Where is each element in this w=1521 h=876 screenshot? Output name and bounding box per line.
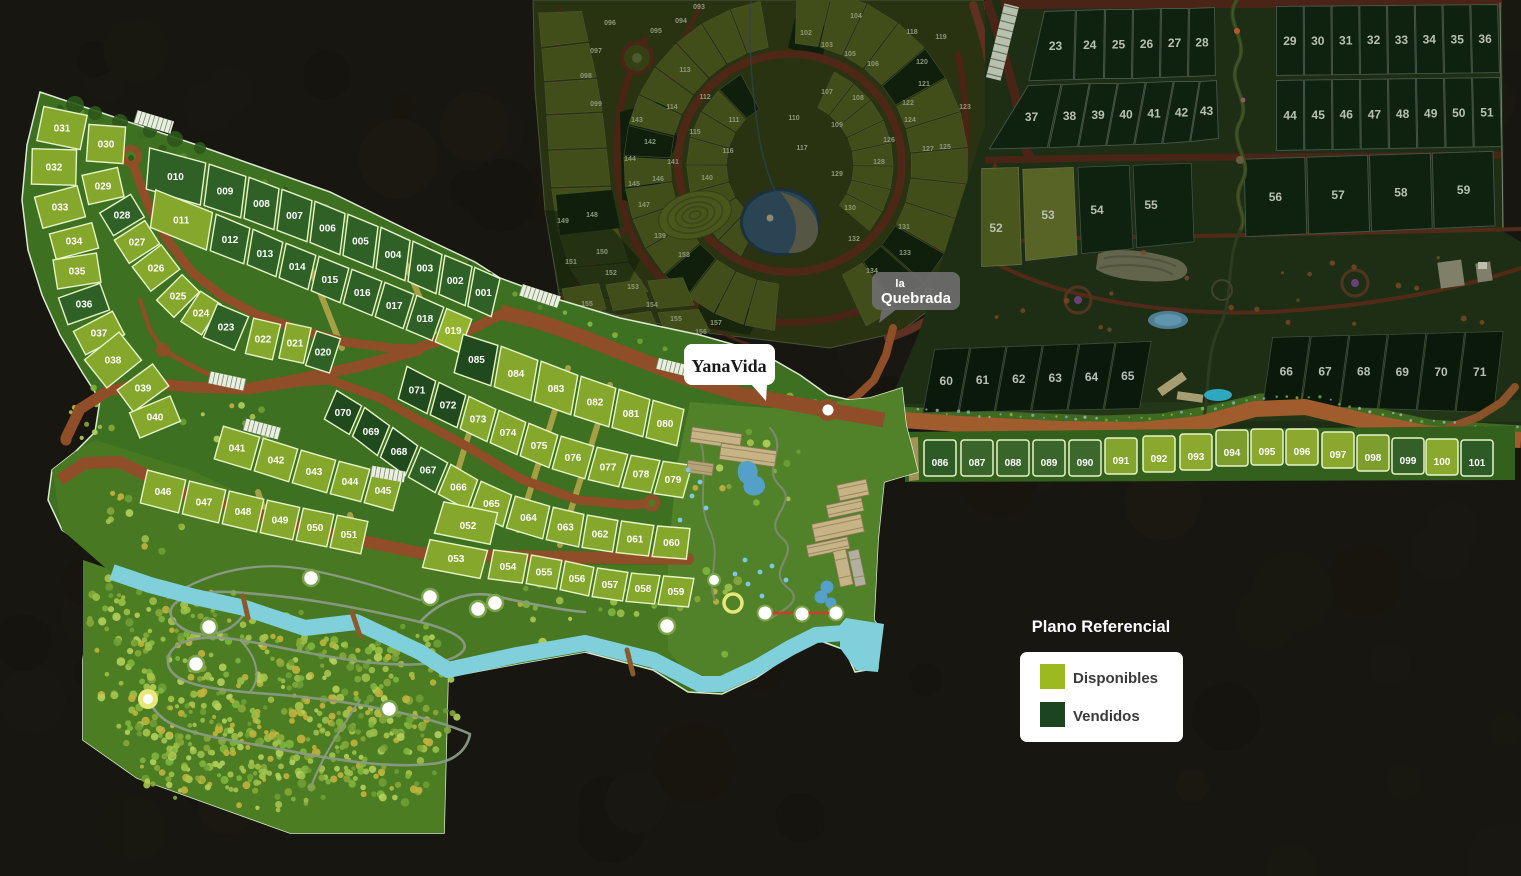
- svg-text:097: 097: [1330, 450, 1347, 461]
- svg-text:014: 014: [289, 262, 306, 273]
- svg-text:55: 55: [1144, 198, 1158, 212]
- svg-text:037: 037: [91, 329, 108, 340]
- svg-text:017: 017: [386, 301, 403, 312]
- svg-text:012: 012: [222, 235, 239, 246]
- svg-text:099: 099: [1400, 456, 1417, 467]
- svg-text:038: 038: [105, 356, 122, 367]
- svg-text:40: 40: [1119, 107, 1133, 121]
- svg-text:149: 149: [557, 218, 569, 225]
- svg-text:65: 65: [1121, 369, 1135, 383]
- svg-text:47: 47: [1368, 107, 1382, 121]
- svg-text:029: 029: [95, 182, 112, 193]
- svg-text:069: 069: [363, 427, 380, 438]
- svg-text:26: 26: [1140, 37, 1154, 51]
- svg-text:109: 109: [831, 122, 843, 129]
- svg-text:098: 098: [580, 73, 592, 80]
- svg-text:112: 112: [699, 94, 710, 101]
- svg-text:157: 157: [710, 320, 722, 327]
- svg-text:021: 021: [287, 339, 304, 350]
- svg-text:040: 040: [147, 413, 164, 424]
- svg-text:Plano Referencial: Plano Referencial: [1032, 618, 1170, 636]
- svg-text:020: 020: [315, 348, 332, 359]
- svg-text:018: 018: [416, 314, 433, 325]
- svg-text:091: 091: [1113, 456, 1130, 467]
- svg-text:121: 121: [918, 81, 930, 88]
- svg-text:059: 059: [668, 587, 685, 598]
- svg-text:YanaVida: YanaVida: [691, 356, 766, 376]
- svg-text:058: 058: [635, 584, 652, 595]
- svg-text:28: 28: [1195, 35, 1209, 49]
- svg-text:085: 085: [468, 355, 485, 366]
- svg-text:36: 36: [1478, 32, 1492, 46]
- svg-text:67: 67: [1318, 365, 1332, 379]
- svg-text:050: 050: [307, 523, 324, 534]
- svg-text:044: 044: [342, 477, 359, 488]
- svg-text:23: 23: [1049, 39, 1063, 53]
- svg-text:151: 151: [565, 259, 577, 266]
- svg-text:131: 131: [898, 224, 910, 231]
- svg-text:104: 104: [850, 13, 862, 20]
- svg-text:022: 022: [255, 335, 272, 346]
- svg-text:127: 127: [922, 146, 934, 153]
- svg-text:44: 44: [1283, 109, 1297, 123]
- svg-text:155: 155: [670, 316, 682, 323]
- svg-text:105: 105: [844, 51, 856, 58]
- svg-text:150: 150: [596, 249, 608, 256]
- svg-text:080: 080: [657, 419, 674, 430]
- svg-text:125: 125: [939, 144, 951, 151]
- svg-text:056: 056: [569, 574, 586, 585]
- svg-text:158: 158: [678, 252, 690, 259]
- svg-text:39: 39: [1091, 108, 1105, 122]
- svg-text:005: 005: [352, 237, 369, 248]
- svg-text:31: 31: [1339, 34, 1353, 48]
- svg-text:38: 38: [1063, 109, 1077, 123]
- svg-text:007: 007: [286, 211, 303, 222]
- svg-text:034: 034: [66, 237, 83, 248]
- svg-text:154: 154: [646, 302, 658, 309]
- svg-text:145: 145: [628, 181, 640, 188]
- svg-text:096: 096: [604, 20, 616, 27]
- svg-text:094: 094: [675, 18, 687, 25]
- svg-text:047: 047: [196, 498, 213, 509]
- svg-text:64: 64: [1085, 370, 1099, 384]
- svg-text:66: 66: [1280, 364, 1294, 378]
- svg-text:032: 032: [46, 163, 63, 174]
- svg-text:031: 031: [54, 124, 71, 135]
- svg-text:51: 51: [1480, 106, 1494, 120]
- svg-text:084: 084: [508, 369, 525, 380]
- svg-text:53: 53: [1041, 208, 1055, 222]
- svg-text:54: 54: [1090, 203, 1104, 217]
- svg-text:132: 132: [848, 236, 860, 243]
- svg-text:057: 057: [602, 580, 619, 591]
- svg-text:089: 089: [1041, 458, 1058, 469]
- svg-text:30: 30: [1311, 34, 1325, 48]
- svg-text:054: 054: [500, 562, 517, 573]
- svg-text:117: 117: [796, 145, 807, 152]
- svg-text:60: 60: [940, 374, 954, 388]
- svg-text:078: 078: [633, 470, 650, 481]
- svg-text:59: 59: [1457, 183, 1471, 197]
- svg-text:110: 110: [788, 115, 799, 122]
- svg-text:52: 52: [989, 221, 1003, 235]
- svg-text:140: 140: [701, 175, 713, 182]
- svg-text:43: 43: [1200, 104, 1214, 118]
- svg-text:009: 009: [217, 187, 234, 198]
- svg-text:015: 015: [321, 275, 338, 286]
- svg-text:128: 128: [873, 159, 885, 166]
- svg-text:Quebrada: Quebrada: [881, 290, 952, 307]
- svg-text:070: 070: [335, 408, 352, 419]
- svg-text:086: 086: [932, 458, 949, 469]
- svg-text:081: 081: [623, 409, 640, 420]
- svg-text:006: 006: [319, 224, 336, 235]
- svg-text:026: 026: [148, 264, 165, 275]
- svg-text:114: 114: [666, 104, 677, 111]
- svg-text:076: 076: [565, 453, 582, 464]
- svg-text:051: 051: [341, 530, 358, 541]
- svg-text:099: 099: [590, 101, 602, 108]
- svg-text:118: 118: [906, 29, 917, 36]
- svg-text:073: 073: [470, 415, 487, 426]
- svg-text:68: 68: [1357, 365, 1371, 379]
- svg-text:58: 58: [1394, 185, 1408, 199]
- svg-text:027: 027: [129, 238, 146, 249]
- svg-text:129: 129: [831, 171, 843, 178]
- svg-text:002: 002: [447, 276, 464, 287]
- svg-text:062: 062: [592, 529, 609, 540]
- svg-text:011: 011: [173, 216, 190, 227]
- svg-text:122: 122: [902, 100, 914, 107]
- svg-text:097: 097: [590, 48, 602, 55]
- svg-text:008: 008: [253, 199, 270, 210]
- svg-text:045: 045: [375, 486, 392, 497]
- svg-text:126: 126: [883, 137, 895, 144]
- svg-text:016: 016: [354, 288, 371, 299]
- svg-text:010: 010: [167, 172, 184, 183]
- svg-text:142: 142: [644, 139, 656, 146]
- svg-text:019: 019: [445, 326, 462, 337]
- svg-text:101: 101: [1469, 458, 1486, 469]
- svg-text:42: 42: [1175, 105, 1189, 119]
- svg-text:048: 048: [235, 507, 252, 518]
- svg-text:57: 57: [1331, 188, 1345, 202]
- svg-text:111: 111: [729, 117, 740, 124]
- svg-text:35: 35: [1451, 32, 1465, 46]
- svg-text:la: la: [895, 278, 905, 290]
- svg-text:033: 033: [52, 203, 69, 214]
- svg-text:043: 043: [306, 467, 323, 478]
- svg-text:088: 088: [1005, 458, 1022, 469]
- svg-text:060: 060: [663, 538, 680, 549]
- svg-text:56: 56: [1269, 190, 1283, 204]
- svg-text:041: 041: [229, 444, 246, 455]
- svg-text:004: 004: [385, 250, 402, 261]
- svg-text:072: 072: [440, 401, 457, 412]
- svg-text:039: 039: [135, 384, 152, 395]
- svg-text:133: 133: [899, 250, 911, 257]
- svg-text:148: 148: [586, 212, 598, 219]
- svg-text:27: 27: [1168, 36, 1182, 50]
- svg-text:074: 074: [500, 428, 517, 439]
- svg-text:023: 023: [218, 323, 235, 334]
- svg-text:049: 049: [272, 516, 289, 527]
- svg-text:003: 003: [416, 263, 433, 274]
- svg-text:49: 49: [1424, 106, 1438, 120]
- svg-text:042: 042: [268, 456, 285, 467]
- svg-text:064: 064: [520, 513, 537, 524]
- svg-text:108: 108: [852, 95, 864, 102]
- svg-text:69: 69: [1396, 365, 1410, 379]
- svg-text:103: 103: [821, 42, 833, 49]
- svg-text:33: 33: [1395, 33, 1409, 47]
- svg-text:071: 071: [409, 386, 426, 397]
- svg-text:153: 153: [627, 284, 639, 291]
- svg-text:152: 152: [605, 270, 617, 277]
- svg-text:102: 102: [800, 30, 812, 37]
- svg-text:024: 024: [193, 309, 210, 320]
- svg-text:62: 62: [1012, 372, 1026, 386]
- svg-text:37: 37: [1025, 110, 1039, 124]
- svg-text:41: 41: [1147, 106, 1161, 120]
- svg-text:065: 065: [483, 499, 500, 510]
- svg-text:119: 119: [935, 34, 946, 41]
- svg-text:013: 013: [256, 249, 273, 260]
- svg-text:123: 123: [959, 104, 971, 111]
- svg-text:094: 094: [1224, 448, 1241, 459]
- svg-text:087: 087: [969, 458, 986, 469]
- svg-text:48: 48: [1396, 107, 1410, 121]
- svg-text:130: 130: [844, 205, 856, 212]
- svg-text:24: 24: [1083, 38, 1097, 52]
- svg-text:147: 147: [638, 202, 650, 209]
- svg-text:Disponibles: Disponibles: [1073, 670, 1158, 687]
- svg-text:61: 61: [976, 373, 990, 387]
- svg-text:035: 035: [69, 267, 86, 278]
- svg-text:067: 067: [420, 466, 437, 477]
- svg-text:025: 025: [170, 292, 187, 303]
- svg-text:028: 028: [114, 211, 131, 222]
- svg-text:036: 036: [76, 300, 93, 311]
- svg-text:143: 143: [631, 117, 643, 124]
- svg-text:124: 124: [904, 117, 916, 124]
- svg-text:098: 098: [1365, 453, 1382, 464]
- svg-text:068: 068: [391, 447, 408, 458]
- svg-text:113: 113: [679, 67, 690, 74]
- svg-text:Vendidos: Vendidos: [1073, 708, 1140, 725]
- svg-text:093: 093: [693, 4, 705, 11]
- svg-text:053: 053: [448, 554, 465, 565]
- svg-text:116: 116: [722, 148, 733, 155]
- svg-text:090: 090: [1077, 458, 1094, 469]
- svg-text:120: 120: [916, 59, 928, 66]
- svg-text:093: 093: [1188, 452, 1205, 463]
- svg-text:107: 107: [821, 89, 833, 96]
- svg-text:141: 141: [667, 159, 679, 166]
- svg-text:45: 45: [1312, 108, 1326, 122]
- svg-text:146: 146: [652, 176, 664, 183]
- svg-text:29: 29: [1283, 34, 1297, 48]
- svg-text:063: 063: [557, 523, 574, 534]
- svg-text:139: 139: [654, 233, 666, 240]
- svg-text:052: 052: [460, 521, 477, 532]
- svg-text:115: 115: [689, 129, 700, 136]
- svg-text:001: 001: [475, 288, 492, 299]
- svg-text:32: 32: [1367, 33, 1381, 47]
- svg-text:030: 030: [98, 140, 115, 151]
- svg-text:061: 061: [627, 534, 644, 545]
- svg-text:100: 100: [1434, 457, 1451, 468]
- svg-text:092: 092: [1151, 454, 1168, 465]
- svg-text:70: 70: [1434, 365, 1448, 379]
- svg-text:066: 066: [450, 483, 467, 494]
- svg-text:34: 34: [1423, 33, 1437, 47]
- svg-text:095: 095: [1259, 447, 1276, 458]
- svg-text:082: 082: [587, 397, 604, 408]
- svg-text:046: 046: [155, 487, 172, 498]
- svg-text:144: 144: [624, 156, 636, 163]
- svg-text:106: 106: [867, 61, 879, 68]
- svg-text:083: 083: [548, 384, 565, 395]
- svg-text:077: 077: [600, 463, 617, 474]
- svg-text:096: 096: [1294, 447, 1311, 458]
- svg-text:095: 095: [650, 28, 662, 35]
- svg-text:25: 25: [1112, 37, 1126, 51]
- svg-text:50: 50: [1452, 106, 1466, 120]
- svg-text:055: 055: [536, 568, 553, 579]
- svg-text:63: 63: [1049, 371, 1063, 385]
- svg-text:079: 079: [665, 475, 682, 486]
- svg-text:075: 075: [531, 441, 548, 452]
- svg-text:46: 46: [1340, 108, 1354, 122]
- svg-text:71: 71: [1473, 365, 1487, 379]
